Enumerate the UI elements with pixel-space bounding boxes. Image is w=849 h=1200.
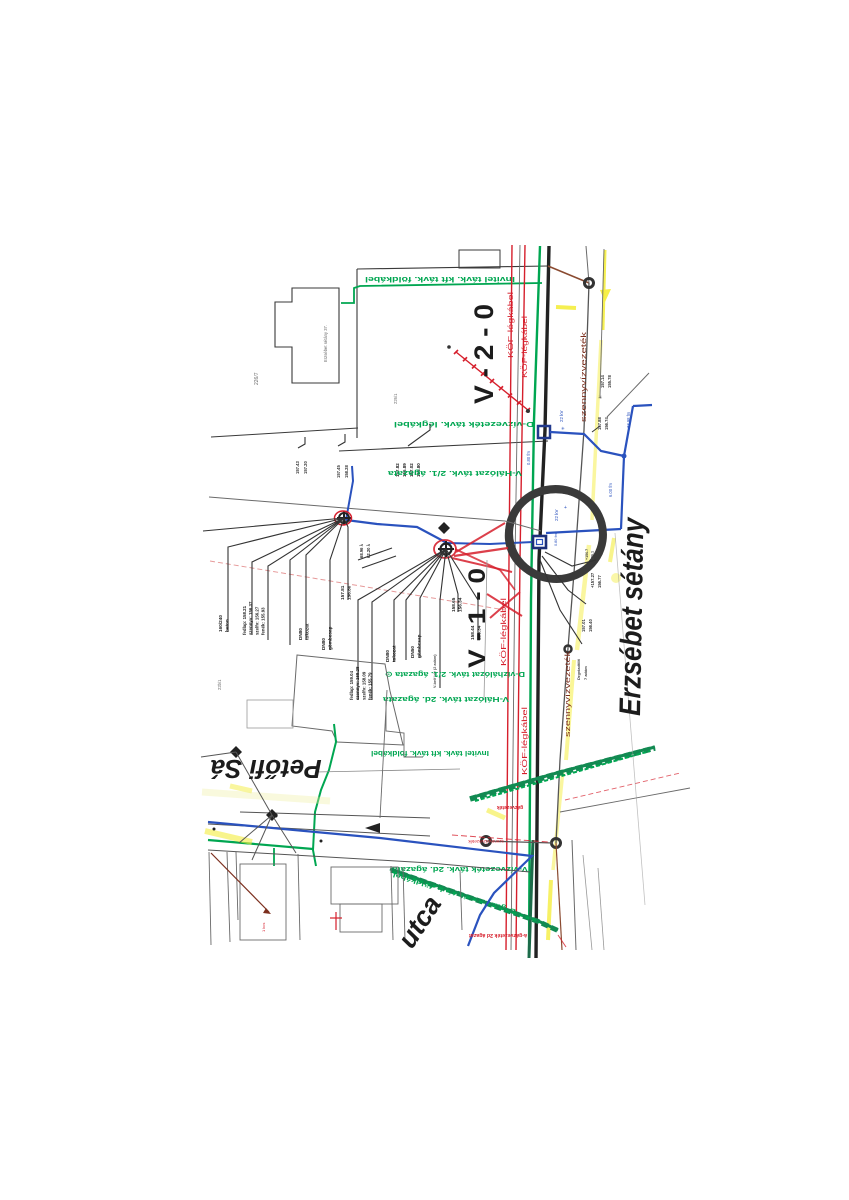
svg-text:✳: ✳ xyxy=(598,395,602,401)
svg-text:à-gázvezeték 2d ágazat: à-gázvezeték 2d ágazat xyxy=(469,932,527,938)
svg-text:7 adám: 7 adám xyxy=(583,666,588,680)
svg-text:157.88: 157.88 xyxy=(597,417,602,430)
svg-text:KÖF-légkábel: KÖF-légkábel xyxy=(521,706,529,775)
svg-text:beton: beton xyxy=(225,619,230,632)
svg-text:156.80: 156.80 xyxy=(347,585,352,600)
svg-text:22b/1: 22b/1 xyxy=(217,679,222,690)
svg-text:+156.7: +156.7 xyxy=(585,549,589,560)
svg-text:szennyv: 156.37: szennyv: 156.37 xyxy=(248,601,253,635)
svg-text:68.96 λ: 68.96 λ xyxy=(359,543,364,558)
svg-text:156.34: 156.34 xyxy=(458,597,463,612)
svg-text:szennyv: 158.28: szennyv: 158.28 xyxy=(355,666,360,700)
svg-text:157.45: 157.45 xyxy=(336,465,341,478)
svg-text:Invitel távk. kft távk. földká: Invitel távk. kft távk. földkábel xyxy=(365,275,515,282)
svg-text:fedlap: 158.21: fedlap: 158.21 xyxy=(242,605,247,635)
svg-text:0.80 fm: 0.80 fm xyxy=(526,451,531,465)
svg-text:+: + xyxy=(564,505,567,511)
svg-text:tokozat: tokozat xyxy=(392,645,397,662)
svg-text:gömbcsap: gömbcsap xyxy=(417,634,422,658)
svg-text:V-Hálózat távk. 2/1. ágazata: V-Hálózat távk. 2/1. ágazata xyxy=(388,469,522,476)
svg-text:DN80: DN80 xyxy=(298,628,303,640)
svg-text:szelfv: 156.27: szelfv: 156.27 xyxy=(254,606,259,635)
svg-text:V - 2 - 0: V - 2 - 0 xyxy=(469,304,499,404)
svg-text:226/7: 226/7 xyxy=(254,372,260,385)
svg-text:V-Hálózat távk. 2d. ágazata: V-Hálózat távk. 2d. ágazata xyxy=(383,695,509,702)
svg-text:160/240: 160/240 xyxy=(218,615,223,632)
svg-text:V - 1 - 0: V - 1 - 0 xyxy=(464,568,491,668)
svg-text:KÖF-légkábel: KÖF-légkábel xyxy=(507,291,515,358)
svg-text:157.81: 157.81 xyxy=(340,585,345,600)
svg-text:+157.27: +157.27 xyxy=(590,572,595,588)
svg-text:fedlap: 159.04: fedlap: 159.04 xyxy=(349,670,354,700)
svg-text:158.28: 158.28 xyxy=(344,465,349,478)
svg-text:157.14: 157.14 xyxy=(600,375,605,388)
svg-text:155.78: 155.78 xyxy=(607,375,612,388)
svg-text:156.74: 156.74 xyxy=(604,417,609,430)
svg-text:22 kV: 22 kV xyxy=(554,509,559,521)
svg-text:Erzsébet sétány: Erzsébet sétány xyxy=(614,516,650,716)
svg-text:KÖF-légkábel: KÖF-légkábel xyxy=(521,315,529,378)
svg-text:szennyvízvezeték: szennyvízvezeték xyxy=(565,650,572,737)
svg-text:fenék: 155.93: fenék: 155.93 xyxy=(261,607,266,635)
svg-text:✳: ✳ xyxy=(561,426,565,431)
svg-text:Drgviadtilit: Drgviadtilit xyxy=(576,658,581,680)
svg-text:157.01: 157.01 xyxy=(581,619,586,632)
svg-text:0.80 fm: 0.80 fm xyxy=(554,533,558,546)
svg-text:DN50: DN50 xyxy=(410,646,415,658)
svg-text:156.1: 156.1 xyxy=(591,551,595,560)
svg-text:gázvezeték: gázvezeték xyxy=(497,804,524,810)
svg-text:Invitel távk. kft távk. földká: Invitel távk. kft távk. földkábel xyxy=(371,749,489,756)
svg-text:226/1: 226/1 xyxy=(393,393,398,404)
svg-text:DN80: DN80 xyxy=(385,650,390,662)
svg-text:szennyvízvezeték: szennyvízvezeték xyxy=(581,331,588,422)
svg-text:KÖF-légkábel: KÖF-légkábel xyxy=(500,597,508,666)
svg-text:22 kV: 22 kV xyxy=(559,410,564,422)
svg-text:6.00 fm: 6.00 fm xyxy=(608,483,613,497)
svg-text:Erzsébet sétány 37.: Erzsébet sétány 37. xyxy=(323,325,328,362)
svg-text:D-vízvezeték távk. légkábel: D-vízvezeték távk. légkábel xyxy=(394,420,534,427)
svg-text:szennyvízvezeték: szennyvízvezeték xyxy=(467,839,503,844)
svg-text:157.43: 157.43 xyxy=(295,461,300,474)
svg-text:Petőfi Sá: Petőfi Sá xyxy=(210,754,321,784)
svg-text:156.40: 156.40 xyxy=(588,619,593,632)
svg-text:158.65: 158.65 xyxy=(451,597,456,612)
svg-text:1 kcs: 1 kcs xyxy=(261,923,266,932)
svg-text:33.98 fm: 33.98 fm xyxy=(626,411,631,428)
svg-text:157.20: 157.20 xyxy=(303,461,308,474)
svg-text:szelfv: 158.09: szelfv: 158.09 xyxy=(361,671,366,700)
svg-text:DN80: DN80 xyxy=(321,638,326,650)
svg-text:tokozat: tokozat xyxy=(305,623,310,640)
svg-text:D-vízhálózat távk. 2/1. ágazat: D-vízhálózat távk. 2/1. ágazata ⊙ xyxy=(385,670,525,677)
svg-text:156.77: 156.77 xyxy=(597,575,602,588)
svg-text:gömbcsap: gömbcsap xyxy=(328,626,333,650)
